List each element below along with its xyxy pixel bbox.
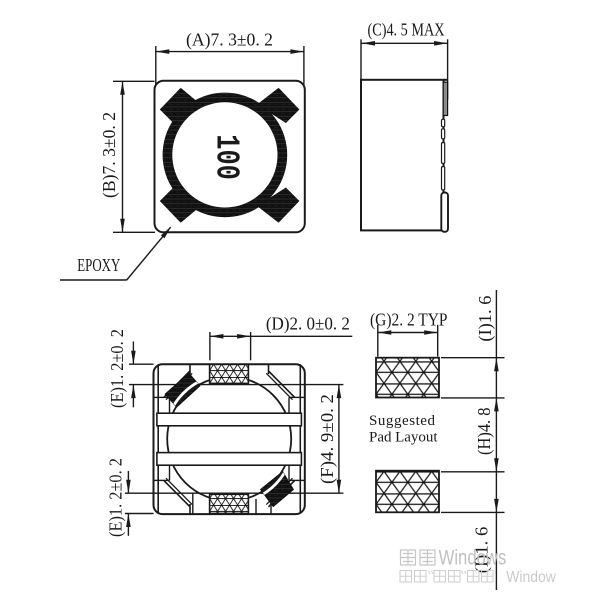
svg-text:Pad Layout: Pad Layout xyxy=(369,430,438,446)
svg-text:(B)7. 3±0. 2: (B)7. 3±0. 2 xyxy=(99,112,120,198)
svg-text:Windows: Windows xyxy=(439,546,507,569)
svg-text:(G)2. 2 TYP: (G)2. 2 TYP xyxy=(370,310,448,331)
svg-text:(F)4. 9±0. 2: (F)4. 9±0. 2 xyxy=(317,394,338,484)
svg-text:Window: Window xyxy=(506,569,556,586)
svg-text:(H)4. 8: (H)4. 8 xyxy=(474,408,495,456)
svg-text:(C)4. 5 MAX: (C)4. 5 MAX xyxy=(368,20,445,41)
svg-text:(A)7. 3±0. 2: (A)7. 3±0. 2 xyxy=(186,30,273,51)
svg-text:(D)2. 0±0. 2: (D)2. 0±0. 2 xyxy=(266,313,350,334)
svg-text:(E)1. 2±0. 2: (E)1. 2±0. 2 xyxy=(107,329,128,408)
svg-text:EPOXY: EPOXY xyxy=(77,255,120,275)
svg-text:100: 100 xyxy=(208,134,245,180)
svg-text:Suggested: Suggested xyxy=(369,413,436,429)
svg-text:(E)1. 2±0. 2: (E)1. 2±0. 2 xyxy=(105,458,126,537)
svg-text:(I)1. 6: (I)1. 6 xyxy=(475,296,496,342)
